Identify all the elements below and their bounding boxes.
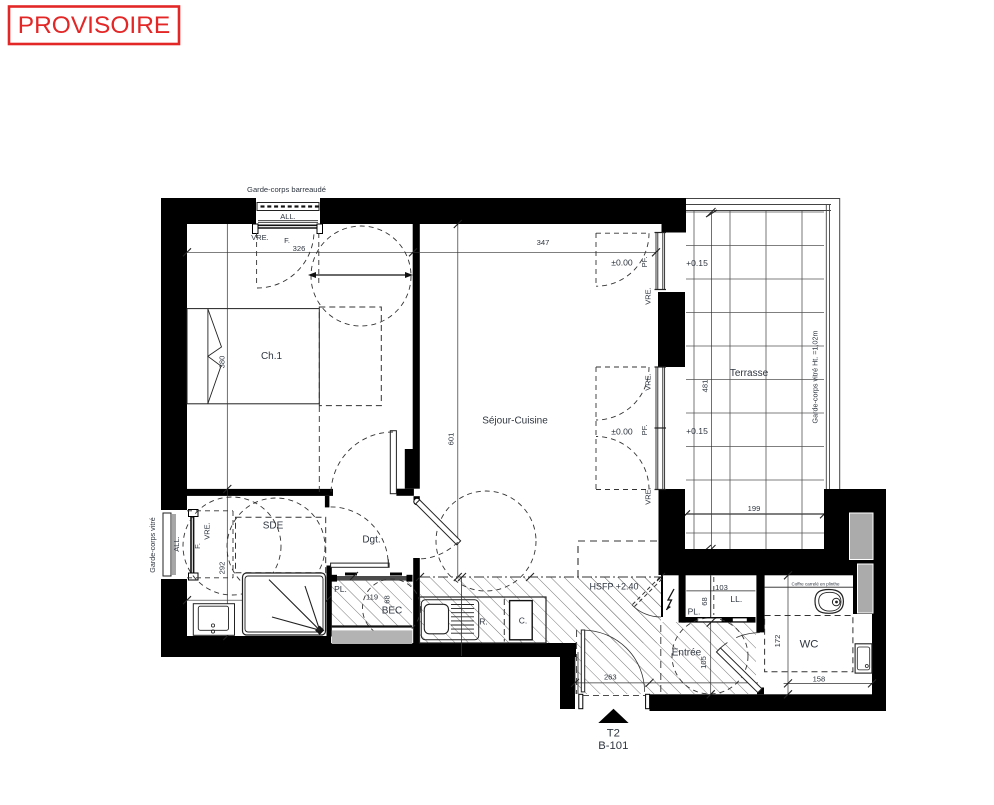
svg-text:105: 105 bbox=[699, 656, 708, 669]
svg-text:HSFP +2.40: HSFP +2.40 bbox=[589, 582, 638, 592]
svg-text:ALL.: ALL. bbox=[280, 212, 295, 221]
svg-text:Terrasse: Terrasse bbox=[730, 368, 769, 379]
svg-text:±0.00: ±0.00 bbox=[611, 427, 633, 437]
svg-text:68: 68 bbox=[383, 595, 392, 603]
svg-text:+0.15: +0.15 bbox=[686, 258, 708, 268]
svg-text:B-101: B-101 bbox=[598, 740, 628, 752]
svg-text:292: 292 bbox=[218, 562, 227, 575]
svg-text:VRE.: VRE. bbox=[203, 522, 212, 540]
svg-text:Garde-corps barreaudé: Garde-corps barreaudé bbox=[247, 185, 326, 194]
svg-text:SDE: SDE bbox=[263, 521, 284, 532]
svg-text:PF.: PF. bbox=[640, 425, 649, 436]
svg-text:481: 481 bbox=[701, 380, 710, 393]
svg-text:103: 103 bbox=[715, 583, 728, 592]
svg-text:Dgt.: Dgt. bbox=[362, 535, 380, 546]
svg-text:PL.: PL. bbox=[688, 607, 701, 617]
svg-text:Entrée: Entrée bbox=[672, 648, 702, 659]
svg-text:199: 199 bbox=[748, 504, 761, 513]
svg-text:119: 119 bbox=[366, 593, 378, 602]
svg-text:VRE.: VRE. bbox=[644, 287, 653, 305]
svg-text:VRE.: VRE. bbox=[251, 233, 269, 242]
svg-text:PROVISOIRE: PROVISOIRE bbox=[18, 12, 170, 39]
svg-text:F.: F. bbox=[284, 236, 290, 245]
svg-text:VRE.: VRE. bbox=[644, 487, 653, 505]
svg-text:±0.00: ±0.00 bbox=[611, 258, 633, 268]
svg-text:PF.: PF. bbox=[640, 257, 649, 268]
svg-text:601: 601 bbox=[447, 433, 456, 446]
svg-text:R.: R. bbox=[479, 617, 488, 627]
svg-text:263: 263 bbox=[604, 673, 617, 682]
svg-text:T2: T2 bbox=[607, 728, 620, 740]
svg-text:F.: F. bbox=[193, 543, 202, 549]
svg-text:PL.: PL. bbox=[334, 584, 347, 594]
svg-text:68: 68 bbox=[700, 597, 709, 605]
svg-text:BEC: BEC bbox=[382, 606, 403, 617]
svg-text:Séjour-Cuisine: Séjour-Cuisine bbox=[482, 416, 548, 427]
svg-text:VRE.: VRE. bbox=[644, 373, 653, 391]
svg-text:347: 347 bbox=[537, 238, 550, 247]
svg-text:326: 326 bbox=[293, 244, 306, 253]
svg-text:LL.: LL. bbox=[730, 594, 742, 604]
svg-text:Coffre carrelé en plinthe: Coffre carrelé en plinthe bbox=[792, 582, 840, 587]
svg-text:158: 158 bbox=[813, 675, 826, 684]
svg-text:+0.15: +0.15 bbox=[686, 426, 708, 436]
svg-text:ALL.: ALL. bbox=[172, 536, 181, 551]
svg-text:380: 380 bbox=[218, 356, 227, 369]
svg-text:Garde-corps vitré Ht. =1,02m: Garde-corps vitré Ht. =1,02m bbox=[811, 331, 820, 424]
svg-text:Ch.1: Ch.1 bbox=[261, 351, 283, 362]
svg-text:WC: WC bbox=[800, 639, 819, 651]
svg-text:Garde-corps vitré: Garde-corps vitré bbox=[148, 517, 157, 573]
svg-text:172: 172 bbox=[773, 635, 782, 648]
svg-text:C.: C. bbox=[519, 616, 528, 626]
